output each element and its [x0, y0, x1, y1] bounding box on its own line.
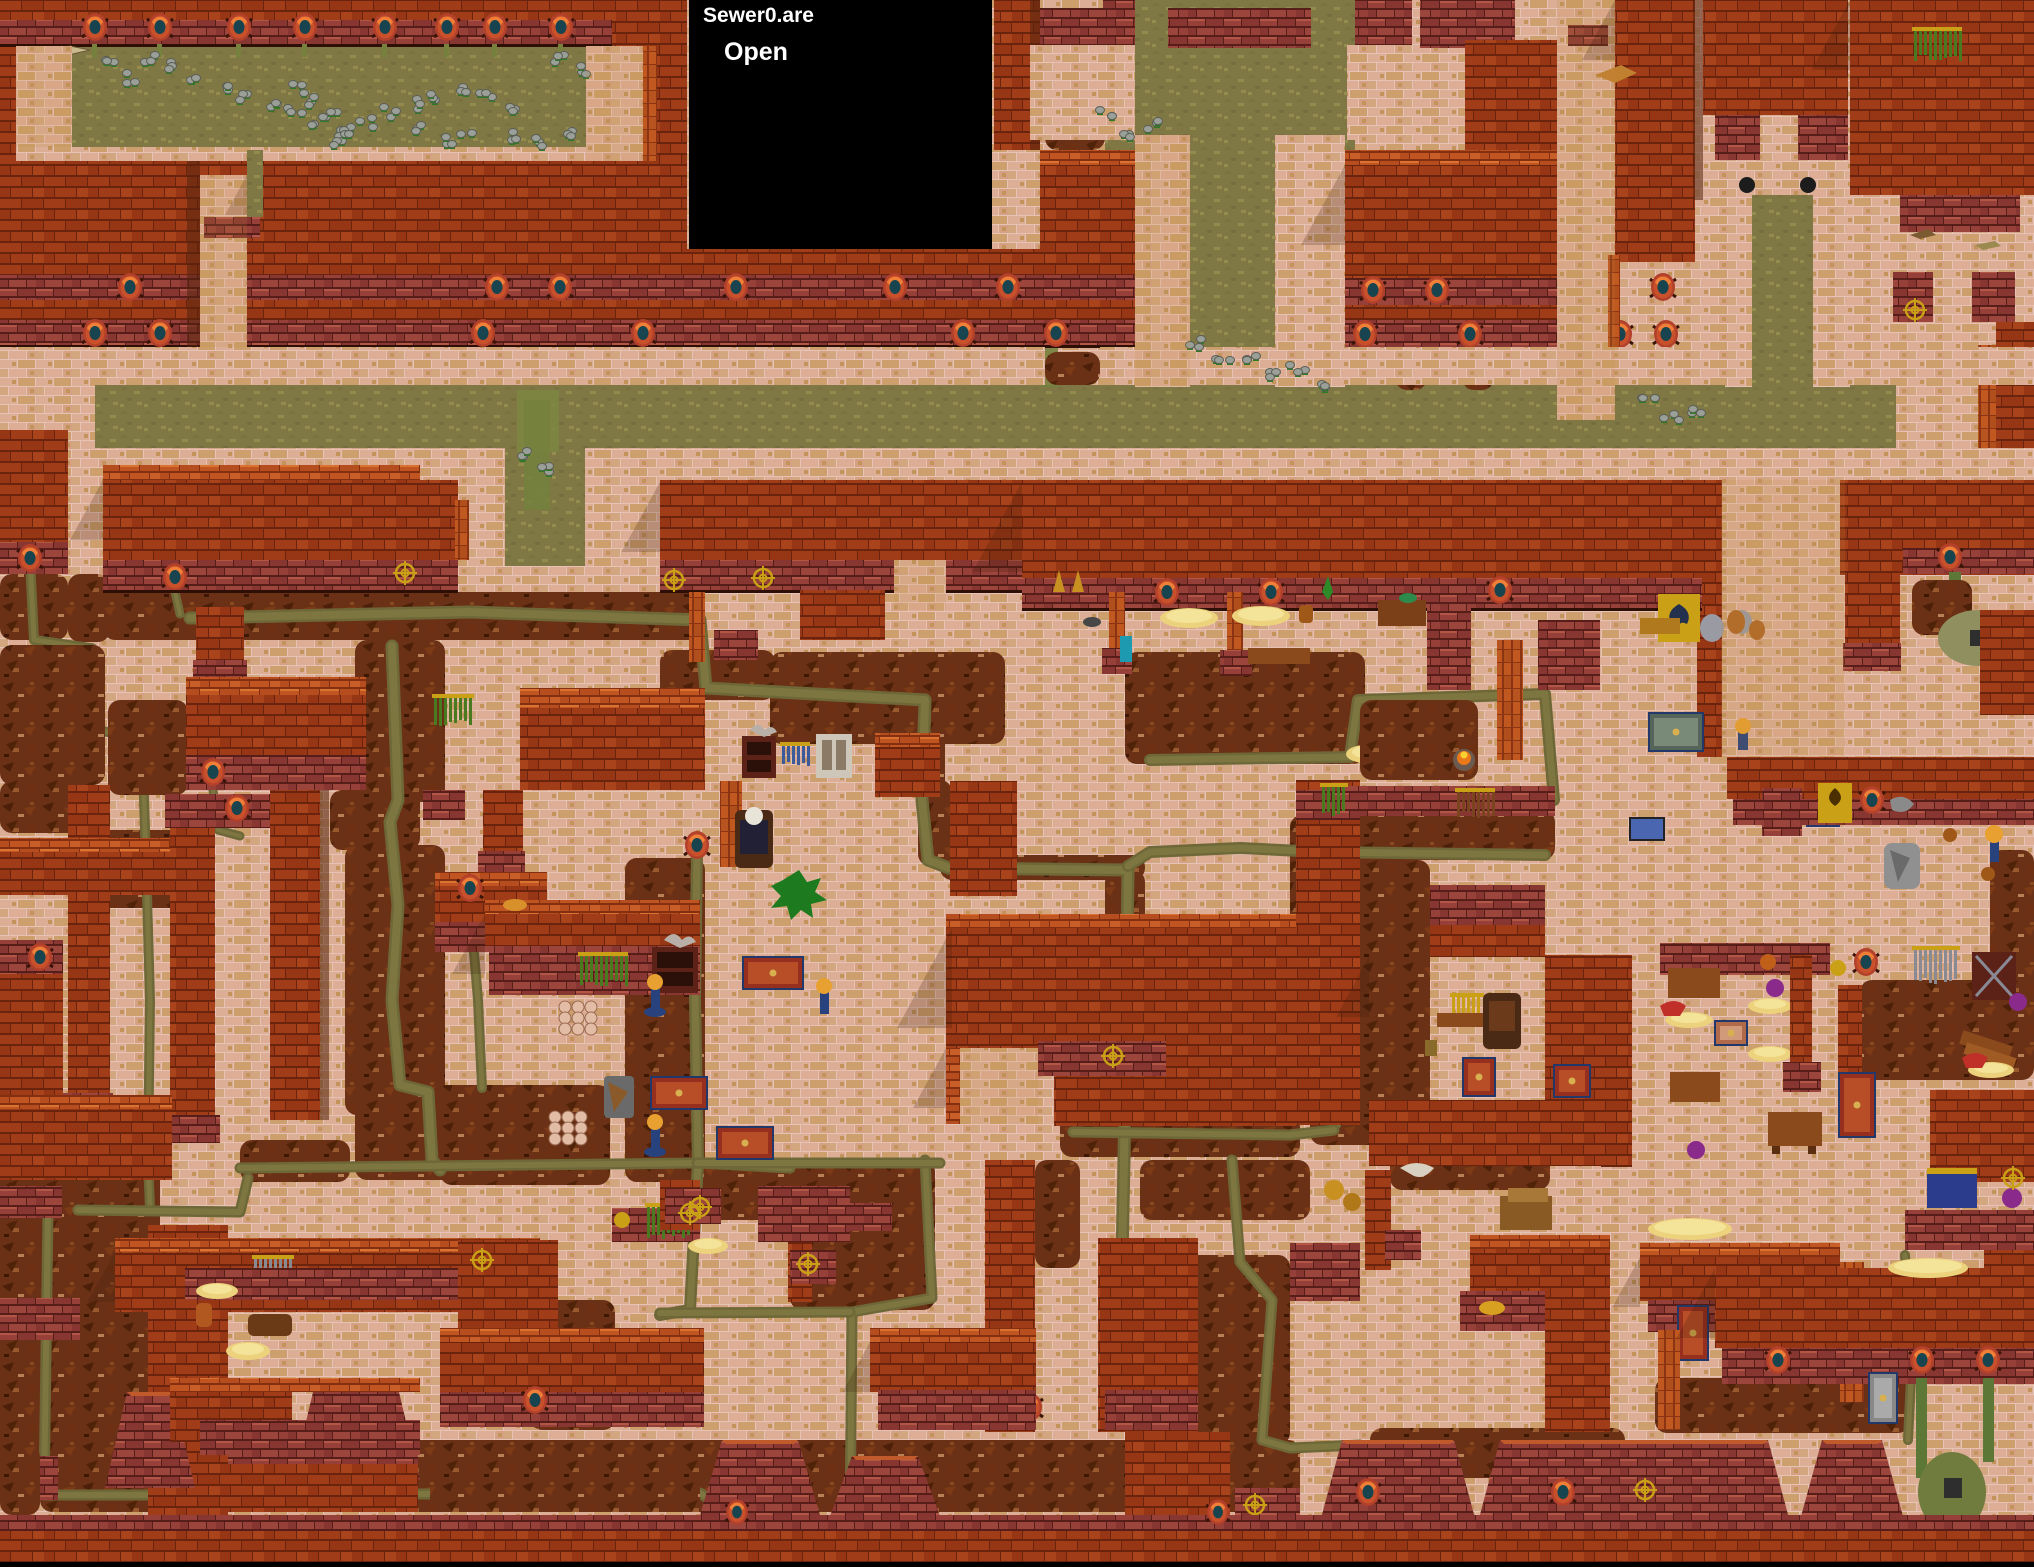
svg-text:Sewer0.are: Sewer0.are	[703, 4, 814, 27]
svg-text:Open: Open	[724, 38, 788, 66]
